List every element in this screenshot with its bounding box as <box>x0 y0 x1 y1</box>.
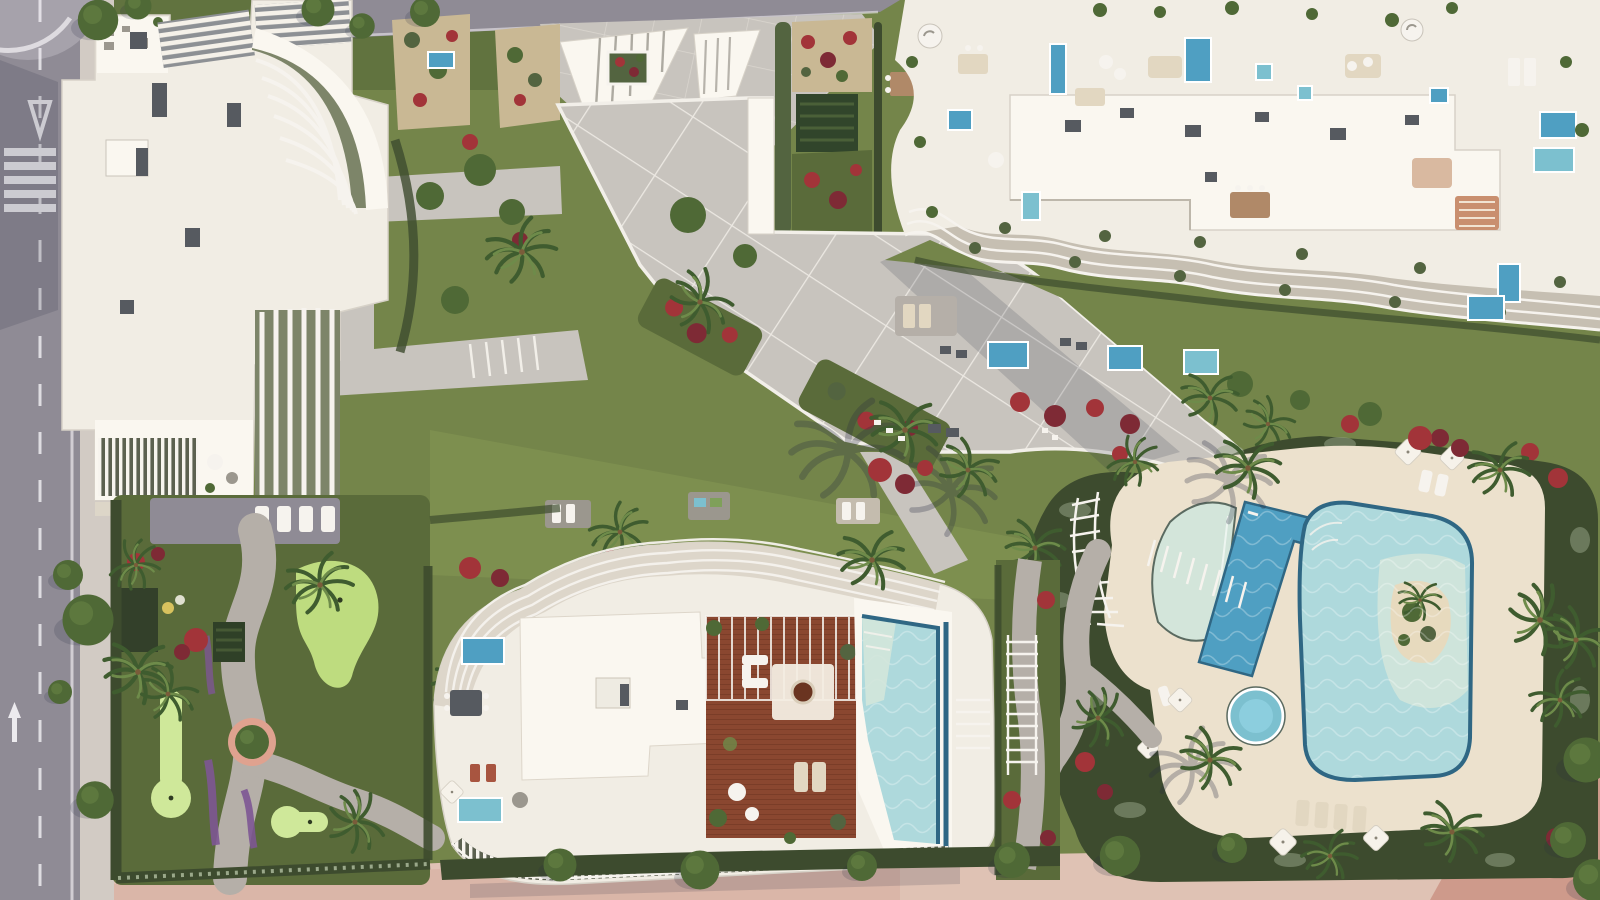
plunge-pool <box>458 798 502 822</box>
south-terrace <box>95 420 253 500</box>
plunge-pool <box>428 52 454 68</box>
deck-lounger <box>812 762 826 792</box>
promenade-tree <box>733 244 757 268</box>
plunge-pool <box>462 638 504 664</box>
fire-table <box>792 681 814 703</box>
garden-cabana-roof <box>118 588 158 652</box>
promenade-tree <box>670 197 706 233</box>
promenade-tree <box>416 182 444 210</box>
dining-set <box>450 690 482 716</box>
curved-balconies-south <box>255 308 340 500</box>
putting-green-garden <box>104 495 432 885</box>
aerial-render <box>0 0 1600 900</box>
communal-leisure-pool <box>1300 503 1472 780</box>
kids-pool <box>1227 687 1285 745</box>
road-shadow <box>0 60 58 330</box>
circular-planter <box>228 718 276 766</box>
pool-complex <box>1025 426 1598 888</box>
rooftop-wood-deck <box>706 616 856 844</box>
building-northwest <box>62 0 388 516</box>
site-plan-svg <box>0 0 1600 900</box>
building-south <box>434 539 996 898</box>
garden-pergola <box>213 622 245 662</box>
east-corridor <box>996 560 1060 880</box>
deck-lounger <box>794 762 808 792</box>
retaining-wall <box>748 98 774 234</box>
